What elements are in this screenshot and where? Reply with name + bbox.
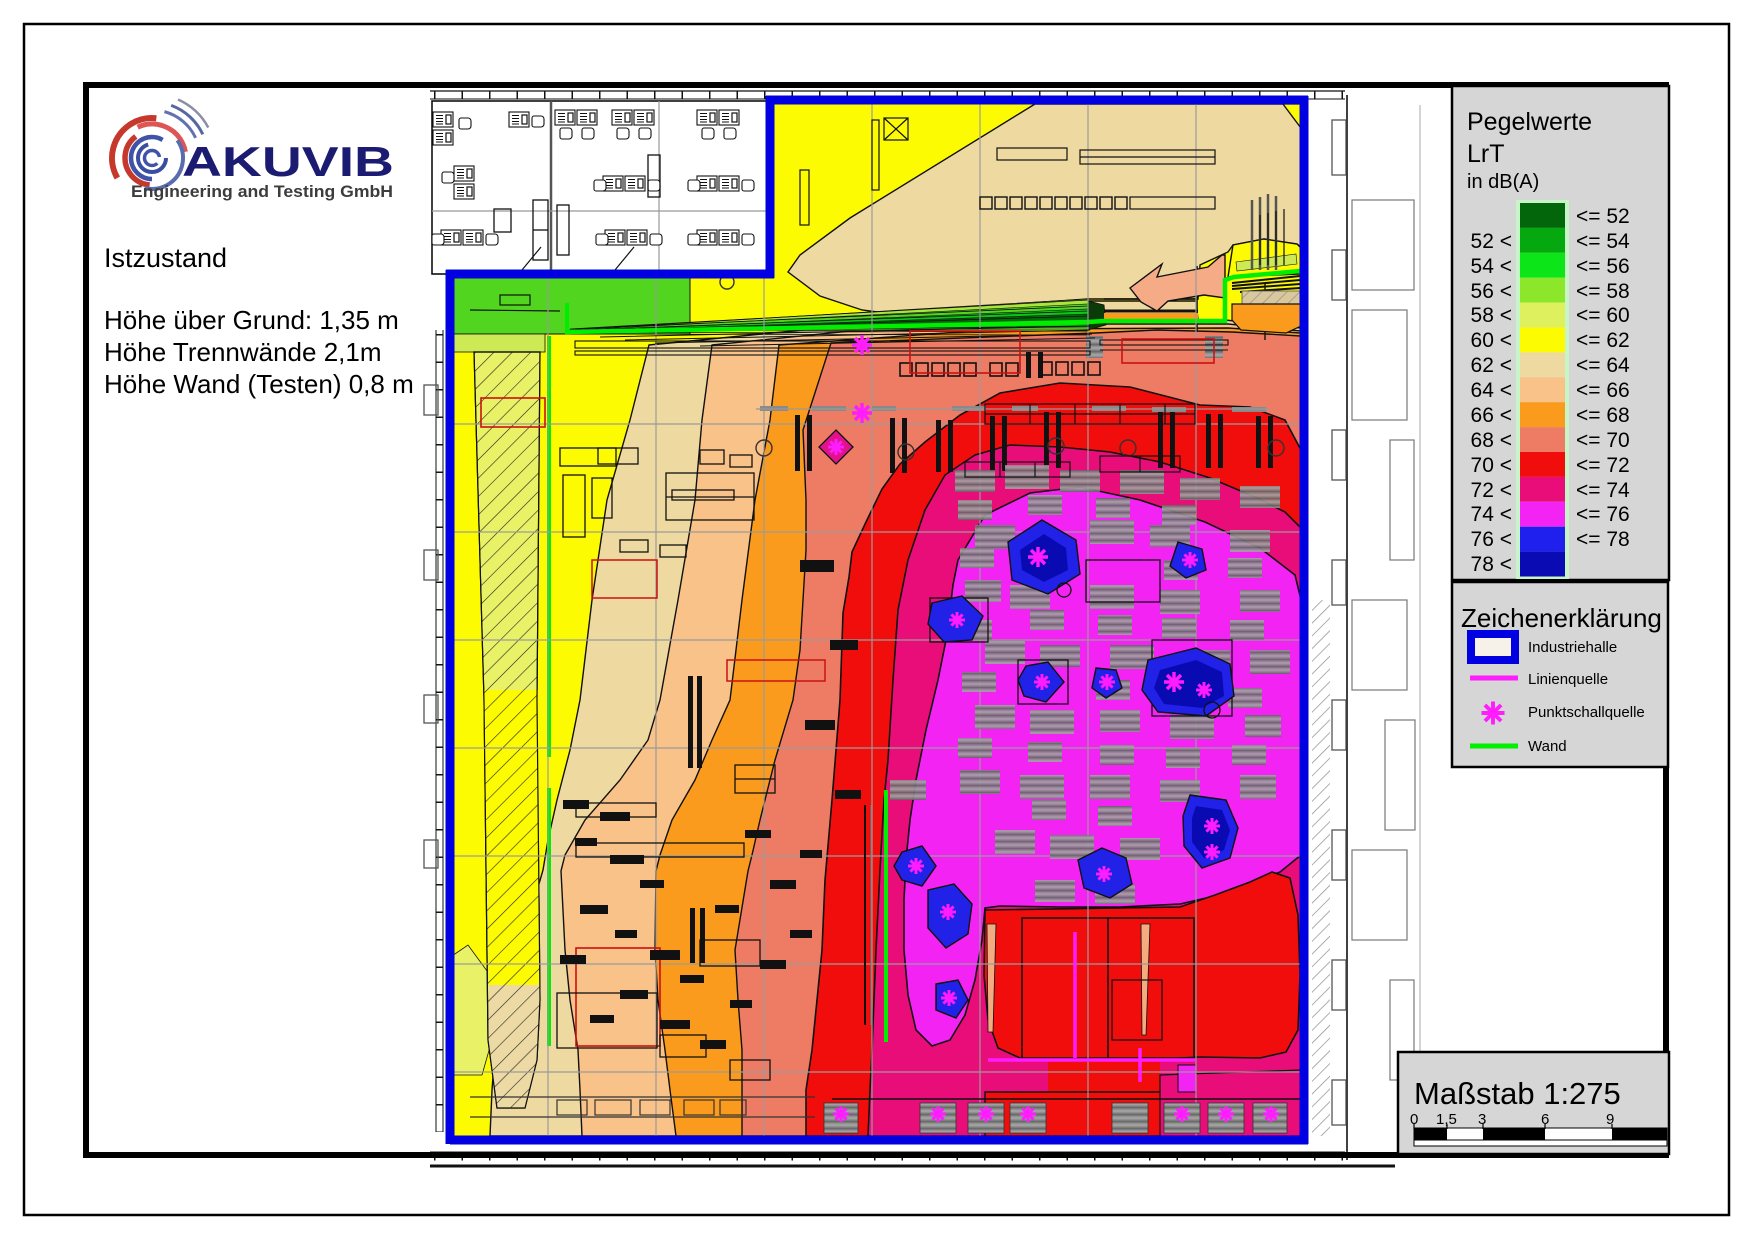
svg-text:3: 3	[1478, 1111, 1486, 1128]
svg-text:60 <: 60 <	[1471, 329, 1512, 352]
svg-text:Istzustand: Istzustand	[104, 243, 227, 273]
svg-text:68 <: 68 <	[1471, 429, 1512, 452]
svg-text:52 <: 52 <	[1471, 230, 1512, 253]
svg-text:<= 52: <= 52	[1576, 205, 1630, 228]
svg-text:72 <: 72 <	[1471, 479, 1512, 502]
svg-text:62 <: 62 <	[1471, 354, 1512, 377]
svg-text:78 <: 78 <	[1471, 553, 1512, 576]
svg-text:56 <: 56 <	[1471, 280, 1512, 303]
svg-text:<= 66: <= 66	[1576, 379, 1630, 402]
svg-text:<= 60: <= 60	[1576, 304, 1630, 327]
svg-text:<= 78: <= 78	[1576, 528, 1630, 551]
svg-text:<= 68: <= 68	[1576, 404, 1630, 427]
svg-text:<= 70: <= 70	[1576, 429, 1630, 452]
svg-text:<= 58: <= 58	[1576, 280, 1630, 303]
svg-text:Höhe Wand (Testen) 0,8 m: Höhe Wand (Testen) 0,8 m	[104, 369, 414, 399]
svg-text:<= 62: <= 62	[1576, 329, 1630, 352]
svg-text:Höhe Trennwände 2,1m: Höhe Trennwände 2,1m	[104, 337, 382, 367]
svg-text:Zeichenerklärung: Zeichenerklärung	[1461, 603, 1662, 633]
svg-text:54 <: 54 <	[1471, 255, 1512, 278]
svg-text:70 <: 70 <	[1471, 454, 1512, 477]
svg-text:LrT: LrT	[1467, 140, 1505, 168]
svg-text:<= 54: <= 54	[1576, 230, 1630, 253]
svg-text:9: 9	[1606, 1111, 1614, 1128]
svg-text:Industriehalle: Industriehalle	[1528, 639, 1617, 656]
svg-text:<= 56: <= 56	[1576, 255, 1630, 278]
svg-text:Maßstab 1:275: Maßstab 1:275	[1414, 1076, 1621, 1111]
svg-text:74 <: 74 <	[1471, 503, 1512, 526]
svg-text:58 <: 58 <	[1471, 304, 1512, 327]
svg-text:AKUVIB: AKUVIB	[182, 138, 394, 185]
svg-text:<= 64: <= 64	[1576, 354, 1630, 377]
svg-text:<= 74: <= 74	[1576, 479, 1630, 502]
svg-text:66 <: 66 <	[1471, 404, 1512, 427]
svg-text:in dB(A): in dB(A)	[1467, 171, 1539, 193]
svg-text:Linienquelle: Linienquelle	[1528, 671, 1608, 688]
svg-text:Pegelwerte: Pegelwerte	[1467, 108, 1592, 136]
svg-text:Punktschallquelle: Punktschallquelle	[1528, 704, 1645, 721]
svg-text:<= 72: <= 72	[1576, 454, 1630, 477]
svg-text:64 <: 64 <	[1471, 379, 1512, 402]
svg-text:76 <: 76 <	[1471, 528, 1512, 551]
svg-text:Wand: Wand	[1528, 738, 1567, 755]
svg-text:Engineering and Testing GmbH: Engineering and Testing GmbH	[131, 182, 393, 201]
svg-text:Höhe über Grund: 1,35 m: Höhe über Grund: 1,35 m	[104, 305, 399, 335]
svg-text:<= 76: <= 76	[1576, 503, 1630, 526]
